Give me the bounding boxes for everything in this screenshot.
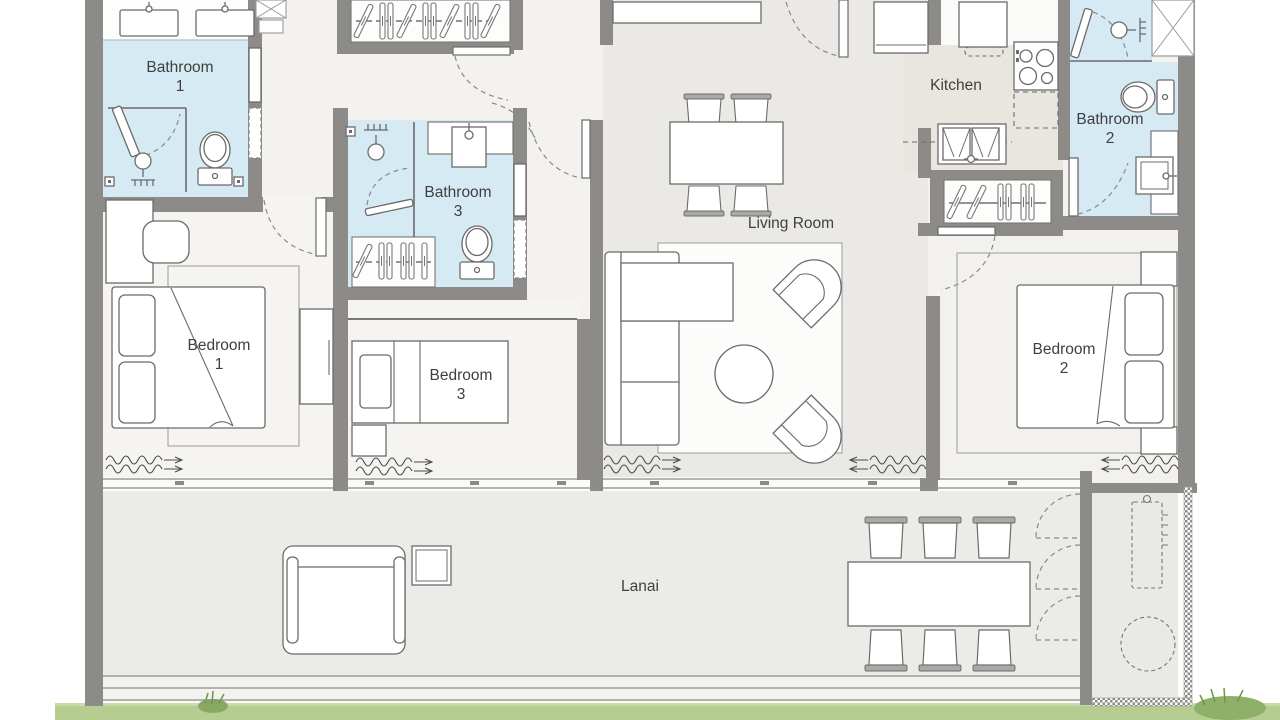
shaft-top-right: [1152, 0, 1194, 56]
living-room-label: Living Room: [716, 214, 866, 233]
closet-hall: [944, 180, 1051, 223]
kitchen-label: Kitchen: [906, 76, 1006, 95]
bathroom-2-label: Bathroom2: [1060, 110, 1160, 148]
bedroom-1-label: Bedroom1: [169, 336, 269, 374]
shaft-corridor: [256, 0, 286, 33]
closet-entry: [351, 0, 510, 42]
closet-bathroom3: [352, 237, 435, 287]
lanai-label: Lanai: [590, 577, 690, 596]
bedroom-2-label: Bedroom2: [1014, 340, 1114, 378]
bedroom-3-label: Bedroom3: [411, 366, 511, 404]
bathroom-3-label: Bathroom3: [408, 183, 508, 221]
bathroom-1-label: Bathroom1: [130, 58, 230, 96]
floor-plan: Bathroom1 Bathroom3 Bathroom2 Bedroom1 B…: [0, 0, 1280, 720]
